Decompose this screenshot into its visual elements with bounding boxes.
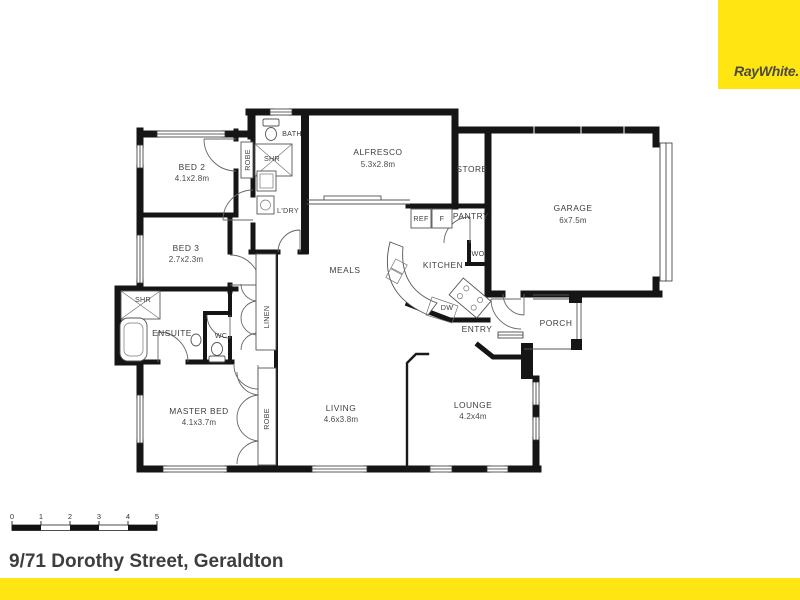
small-interior-walls bbox=[205, 242, 488, 467]
label-ldry: L'DRY bbox=[277, 206, 299, 215]
label-wc: WC bbox=[215, 331, 228, 340]
label-alfresco: ALFRESCO bbox=[353, 147, 402, 157]
footer-accent-bar bbox=[0, 578, 800, 600]
dims-alfresco: 5.3x2.8m bbox=[361, 160, 396, 169]
scale-tick-1: 1 bbox=[39, 512, 43, 521]
lounge-corner-block bbox=[521, 343, 533, 379]
label-bed3: BED 3 bbox=[173, 243, 200, 253]
label-kitchen: KITCHEN bbox=[423, 260, 463, 270]
scale-bar: 0 1 2 3 4 5 bbox=[0, 509, 175, 535]
scale-tick-5: 5 bbox=[155, 512, 159, 521]
label-ensuite: ENSUITE bbox=[152, 328, 192, 338]
label-bath: BATH bbox=[282, 129, 302, 138]
label-entry: ENTRY bbox=[462, 324, 493, 334]
raywhite-logo-text: RayWhite. bbox=[734, 63, 799, 79]
sliding-door bbox=[307, 196, 410, 204]
label-linen: LINEN bbox=[262, 306, 271, 329]
raywhite-logo: RayWhite. bbox=[718, 0, 800, 89]
label-living: LIVING bbox=[326, 403, 356, 413]
label-store: STORE bbox=[456, 164, 487, 174]
floor-plan-page: BED 2 4.1x2.8m BED 3 2.7x2.3m ROBE BATH … bbox=[0, 0, 800, 600]
toilet-icon bbox=[263, 119, 279, 126]
scale-tick-3: 3 bbox=[97, 512, 101, 521]
label-robe-top: ROBE bbox=[243, 149, 252, 171]
basin-icon bbox=[191, 334, 201, 346]
dims-garage: 6x7.5m bbox=[559, 216, 587, 225]
scale-tick-2: 2 bbox=[68, 512, 72, 521]
label-wo: WO bbox=[472, 249, 485, 258]
label-shr-top: SHR bbox=[264, 154, 280, 163]
property-address: 9/71 Dorothy Street, Geraldton bbox=[9, 551, 284, 573]
dims-master: 4.1x3.7m bbox=[182, 418, 217, 427]
label-freezer: F bbox=[440, 214, 445, 223]
label-master: MASTER BED bbox=[169, 406, 228, 416]
dims-bed2: 4.1x2.8m bbox=[175, 174, 210, 183]
label-bed2: BED 2 bbox=[179, 162, 206, 172]
scale-tick-0: 0 bbox=[10, 512, 14, 521]
living-lounge-divider bbox=[407, 354, 428, 469]
label-dw: DW bbox=[441, 303, 454, 312]
dims-bed3: 2.7x2.3m bbox=[169, 255, 204, 264]
washing-machine-icon bbox=[257, 196, 274, 214]
label-ref: REF bbox=[413, 214, 429, 223]
label-lounge: LOUNGE bbox=[454, 400, 492, 410]
label-shr-ensuite: SHR bbox=[135, 295, 151, 304]
dims-living: 4.6x3.8m bbox=[324, 415, 359, 424]
label-pantry: PANTRY bbox=[453, 211, 489, 221]
wc-toilet-icon bbox=[212, 343, 223, 356]
label-robe-master: ROBE bbox=[262, 408, 271, 430]
interior-walls bbox=[118, 112, 521, 362]
dims-lounge: 4.2x4m bbox=[459, 412, 487, 421]
label-meals: MEALS bbox=[330, 265, 361, 275]
label-porch: PORCH bbox=[540, 318, 573, 328]
label-garage: GARAGE bbox=[554, 203, 593, 213]
scale-tick-4: 4 bbox=[126, 512, 130, 521]
